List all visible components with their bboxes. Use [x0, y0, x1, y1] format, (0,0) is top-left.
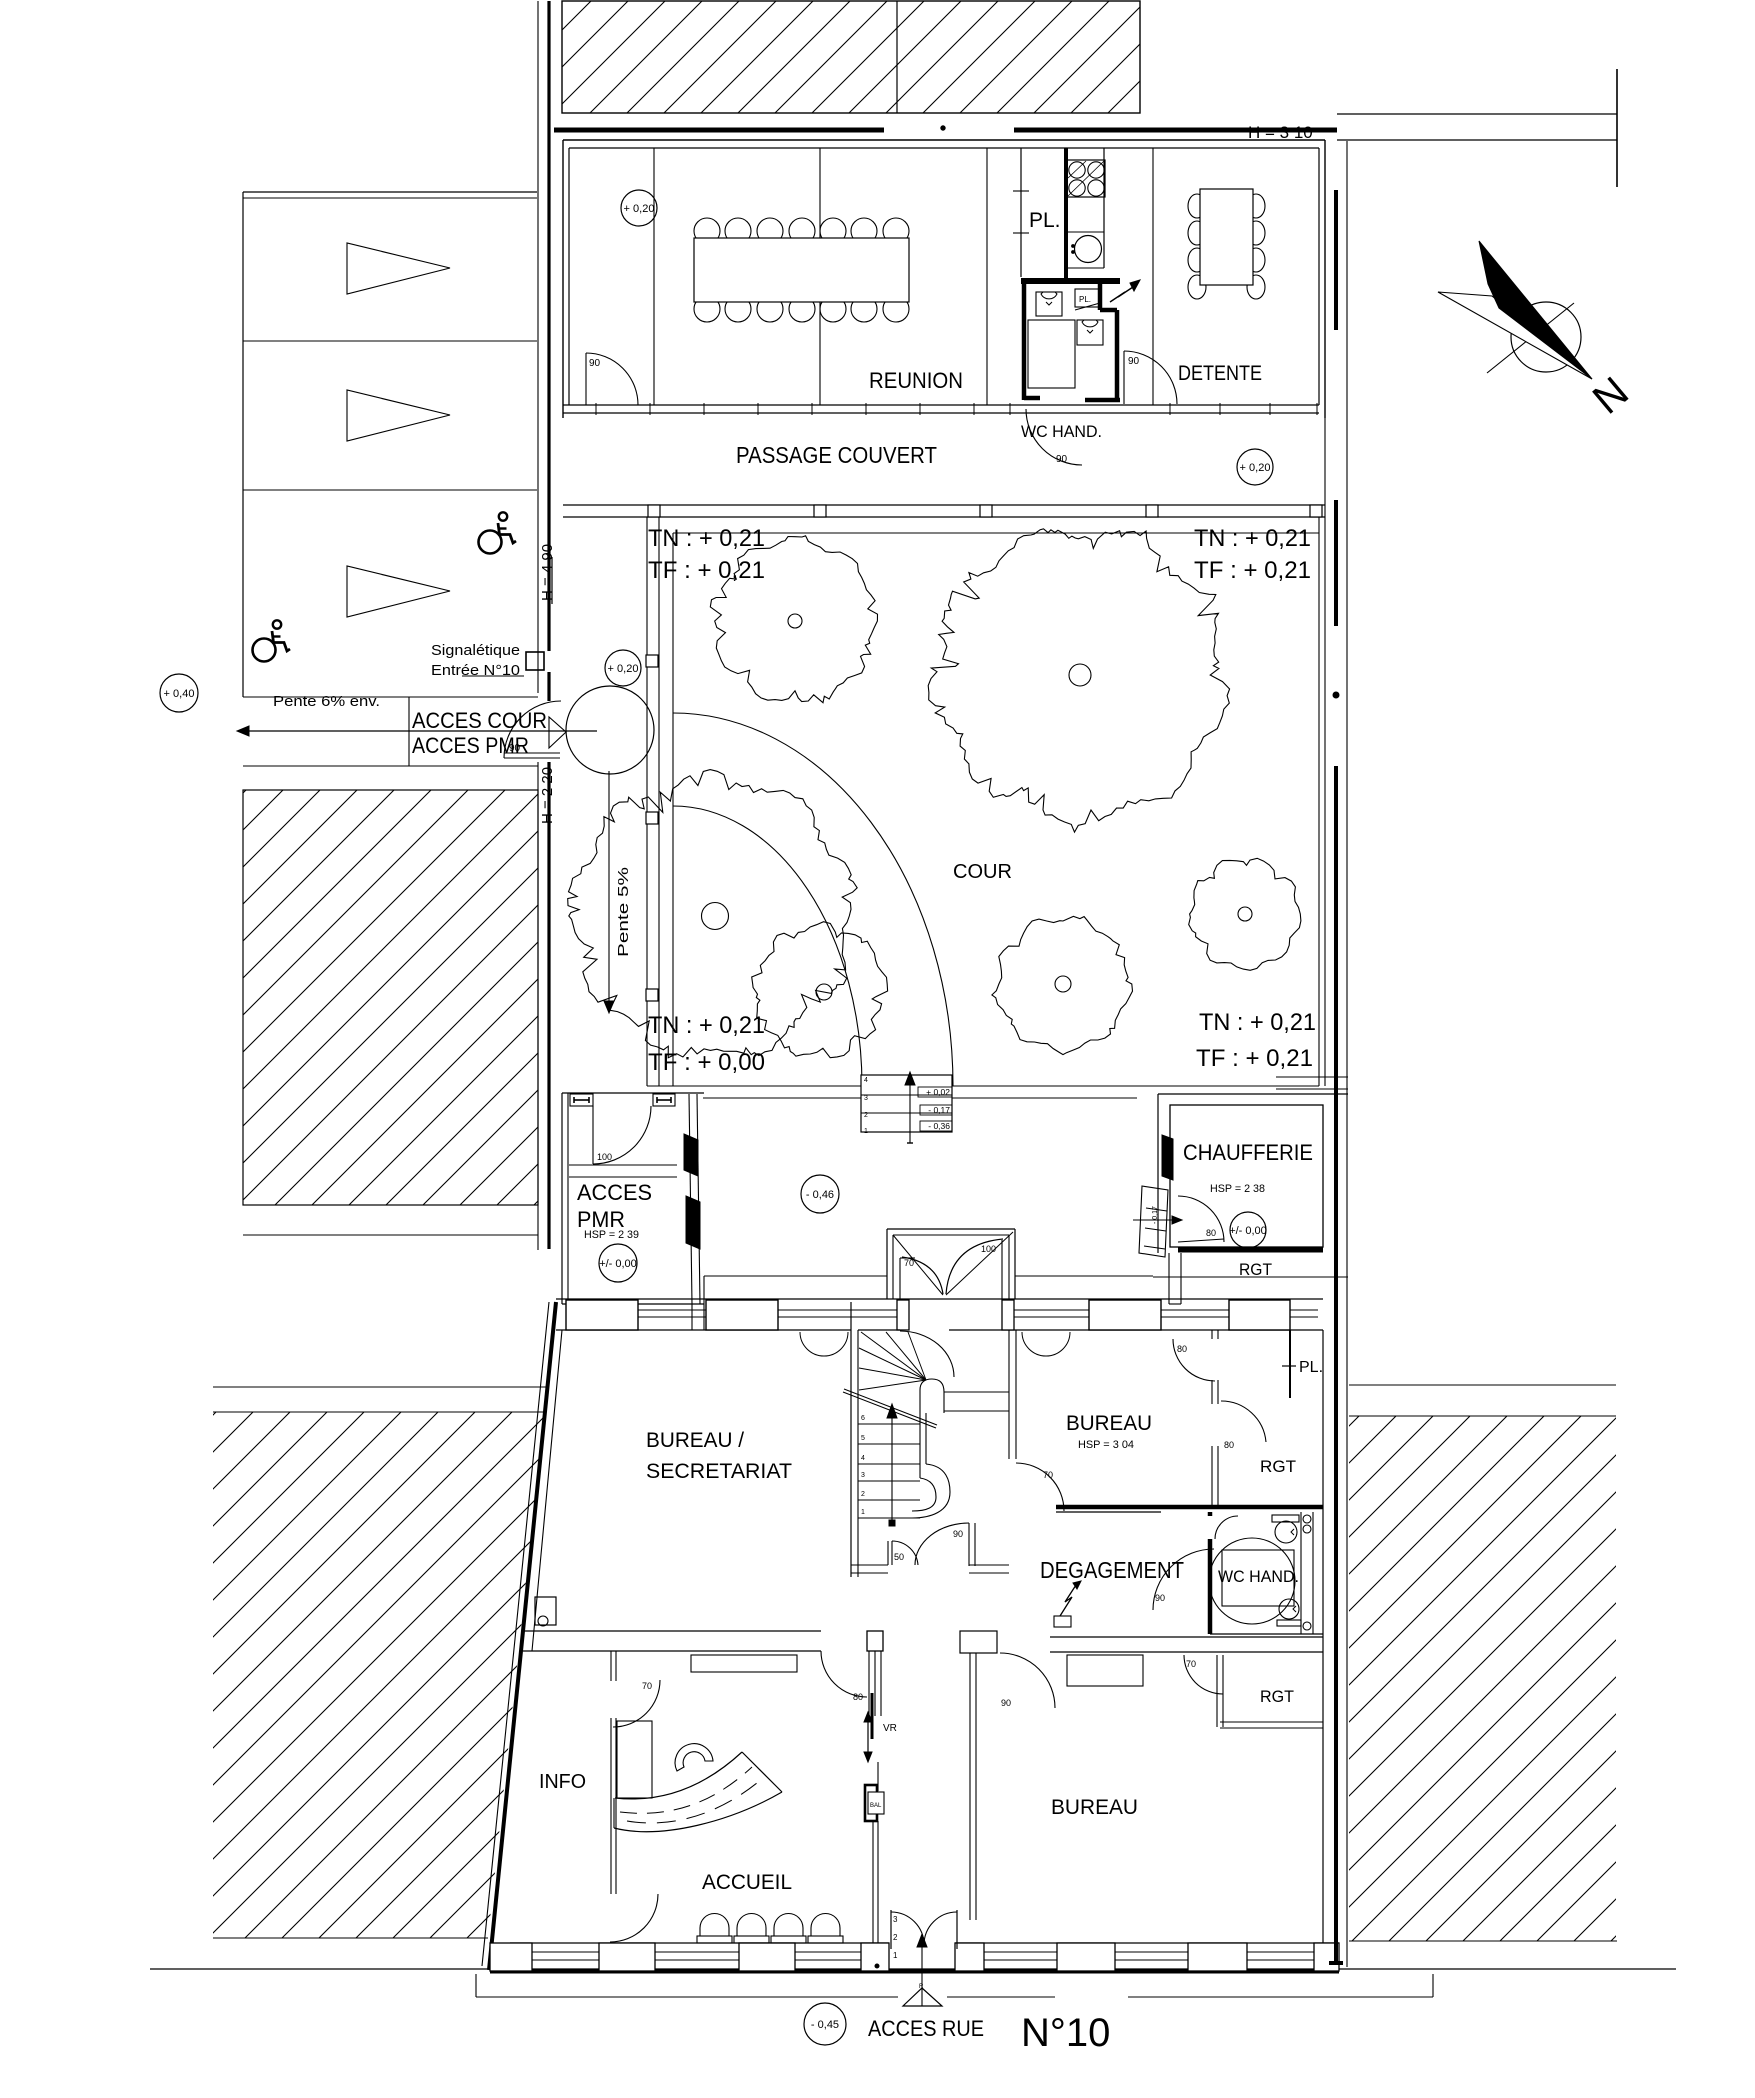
svg-text:- 0,36: - 0,36 — [928, 1121, 950, 1131]
svg-text:+/- 0,00: +/- 0,00 — [1229, 1225, 1267, 1237]
svg-text:BUREAU: BUREAU — [1051, 1796, 1138, 1819]
svg-text:+ 0,40: + 0,40 — [164, 688, 195, 700]
svg-text:70: 70 — [642, 1681, 652, 1691]
svg-text:RGT: RGT — [1260, 1687, 1294, 1706]
svg-text:COUR: COUR — [953, 861, 1012, 883]
svg-text:DEGAGEMENT: DEGAGEMENT — [1040, 1557, 1184, 1583]
svg-text:3: 3 — [861, 1472, 865, 1479]
svg-text:4: 4 — [861, 1455, 865, 1462]
svg-text:BUREAU: BUREAU — [1066, 1412, 1152, 1435]
svg-text:70: 70 — [1043, 1470, 1053, 1480]
svg-text:ACCES: ACCES — [577, 1180, 652, 1205]
svg-text:4: 4 — [864, 1077, 868, 1084]
svg-text:HSP = 2 38: HSP = 2 38 — [1210, 1183, 1265, 1195]
svg-text:RGT: RGT — [1260, 1457, 1296, 1476]
svg-text:70: 70 — [1186, 1659, 1196, 1669]
svg-text:CHAUFFERIE: CHAUFFERIE — [1183, 1140, 1313, 1165]
svg-text:Signalétique: Signalétique — [431, 642, 520, 659]
svg-text:+ 0,20: + 0,20 — [624, 203, 655, 215]
svg-text:80: 80 — [853, 1692, 863, 1702]
svg-text:RGT: RGT — [1239, 1260, 1272, 1279]
svg-text:WC HAND.: WC HAND. — [1021, 422, 1102, 441]
svg-text:DETENTE: DETENTE — [1178, 362, 1262, 385]
svg-text:3: 3 — [893, 1915, 898, 1924]
svg-text:Pente 6% env.: Pente 6% env. — [273, 693, 380, 710]
svg-text:80: 80 — [1206, 1228, 1216, 1238]
svg-text:2: 2 — [864, 1112, 868, 1119]
svg-text:2: 2 — [861, 1491, 865, 1498]
svg-text:3: 3 — [864, 1095, 868, 1102]
svg-text:- 0,45: - 0,45 — [811, 2019, 839, 2031]
svg-text:VR: VR — [883, 1723, 897, 1734]
svg-text:+ 0,20: + 0,20 — [1240, 462, 1271, 474]
svg-text:- 0,46: - 0,46 — [806, 1189, 834, 1201]
svg-text:80: 80 — [1177, 1344, 1187, 1354]
svg-text:Pente 5%: Pente 5% — [615, 867, 632, 957]
svg-text:1: 1 — [893, 1951, 898, 1960]
svg-text:HSP = 3 04: HSP = 3 04 — [1078, 1439, 1134, 1451]
svg-text:TF : + 0,00: TF : + 0,00 — [648, 1049, 765, 1076]
svg-text:TN : + 0,21: TN : + 0,21 — [1199, 1009, 1316, 1036]
svg-text:+ 0,02: + 0,02 — [926, 1087, 950, 1097]
svg-text:90: 90 — [1056, 454, 1068, 465]
svg-text:BUREAU /: BUREAU / — [646, 1429, 744, 1452]
svg-text:ACCES RUE: ACCES RUE — [868, 2016, 984, 2041]
svg-text:TF : + 0,21: TF : + 0,21 — [1194, 557, 1311, 584]
svg-text:SECRETARIAT: SECRETARIAT — [646, 1460, 792, 1483]
svg-text:- 0,17: - 0,17 — [1152, 1206, 1159, 1224]
svg-text:90: 90 — [589, 358, 601, 369]
svg-text:Entrée N°10: Entrée N°10 — [431, 662, 520, 679]
svg-text:TF : + 0,21: TF : + 0,21 — [648, 557, 765, 584]
svg-text:1: 1 — [861, 1509, 865, 1516]
svg-text:TN : + 0,21: TN : + 0,21 — [648, 1012, 765, 1039]
svg-text:50: 50 — [894, 1552, 904, 1562]
svg-text:80: 80 — [1224, 1440, 1234, 1450]
svg-text:90: 90 — [1155, 1593, 1165, 1603]
svg-text:100: 100 — [981, 1244, 996, 1254]
svg-text:6: 6 — [861, 1415, 865, 1422]
svg-text:REUNION: REUNION — [869, 368, 963, 393]
svg-text:1: 1 — [864, 1128, 868, 1135]
svg-text:+ 0,20: + 0,20 — [608, 663, 639, 675]
svg-text:TN : + 0,21: TN : + 0,21 — [648, 525, 765, 552]
svg-text:H = 3 10: H = 3 10 — [1248, 123, 1313, 142]
svg-text:90: 90 — [509, 743, 521, 754]
svg-text:90: 90 — [953, 1529, 963, 1539]
svg-text:PL.: PL. — [1079, 295, 1091, 304]
svg-text:TF : + 0,21: TF : + 0,21 — [1196, 1045, 1313, 1072]
svg-text:N°10: N°10 — [1021, 2011, 1110, 2055]
svg-text:TN : + 0,21: TN : + 0,21 — [1194, 525, 1311, 552]
svg-text:70: 70 — [904, 1258, 914, 1268]
svg-text:PASSAGE COUVERT: PASSAGE COUVERT — [736, 442, 937, 468]
svg-text:WC HAND.: WC HAND. — [1218, 1567, 1299, 1586]
svg-text:ACCUEIL: ACCUEIL — [702, 1871, 792, 1894]
svg-text:H = 4 90: H = 4 90 — [539, 544, 556, 601]
svg-text:H = 2 20: H = 2 20 — [539, 767, 556, 824]
svg-text:PL.: PL. — [1029, 209, 1061, 232]
svg-text:BAL: BAL — [870, 1803, 882, 1809]
svg-text:INFO: INFO — [539, 1771, 586, 1793]
svg-text:5: 5 — [861, 1435, 865, 1442]
svg-text:- 0,17: - 0,17 — [928, 1105, 950, 1115]
svg-text:+/- 0,00: +/- 0,00 — [599, 1258, 637, 1270]
svg-text:100: 100 — [597, 1152, 612, 1162]
svg-text:HSP = 2 39: HSP = 2 39 — [584, 1229, 639, 1241]
svg-text:2: 2 — [893, 1933, 898, 1942]
svg-text:90: 90 — [1128, 356, 1140, 367]
svg-text:PL.: PL. — [1299, 1359, 1323, 1376]
svg-text:90: 90 — [1001, 1698, 1011, 1708]
